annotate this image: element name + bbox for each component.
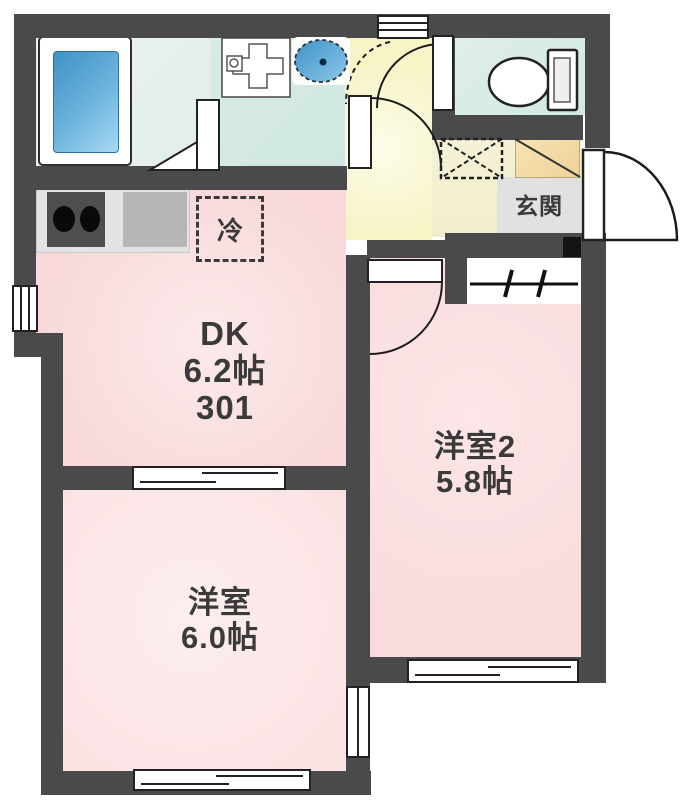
dashed-door-arc [346, 42, 390, 104]
bedroom2-size: 5.8帖 [360, 465, 590, 500]
hanger-pole [470, 270, 578, 297]
stove-burners [53, 206, 100, 232]
toilet [489, 50, 577, 110]
dk-size: 6.2帖 [100, 353, 350, 390]
window-left [13, 286, 37, 331]
window-bedroom2-bottom [408, 660, 578, 682]
unit-number: 301 [100, 390, 350, 427]
sliding-door-dk-bedroom1 [133, 467, 285, 489]
window-bedroom1-right [347, 687, 369, 757]
window-bedroom1-bottom [134, 770, 310, 790]
washbasin-unit [222, 38, 290, 97]
shoe-cabinet-diagonal [515, 139, 580, 177]
bedroom1-label: 洋室 6.0帖 [90, 586, 350, 655]
bedroom2-label: 洋室2 5.8帖 [360, 430, 590, 499]
basin-bowl [292, 37, 350, 85]
dk-name: DK [100, 316, 350, 353]
door-entrance [583, 150, 677, 240]
floor-plan: 冷 [0, 0, 682, 800]
entrance-label: 玄関 [497, 194, 581, 220]
washing-machine-space [441, 139, 502, 178]
dk-room-label: DK 6.2帖 301 [100, 316, 350, 427]
door-bedroom2 [368, 260, 442, 354]
window-top [378, 16, 428, 38]
door-bathroom [150, 100, 219, 170]
bedroom2-name: 洋室2 [360, 430, 590, 465]
bedroom1-size: 6.0帖 [90, 621, 350, 656]
door-washroom [349, 96, 441, 168]
bedroom1-name: 洋室 [90, 586, 350, 621]
door-toilet [377, 36, 453, 110]
